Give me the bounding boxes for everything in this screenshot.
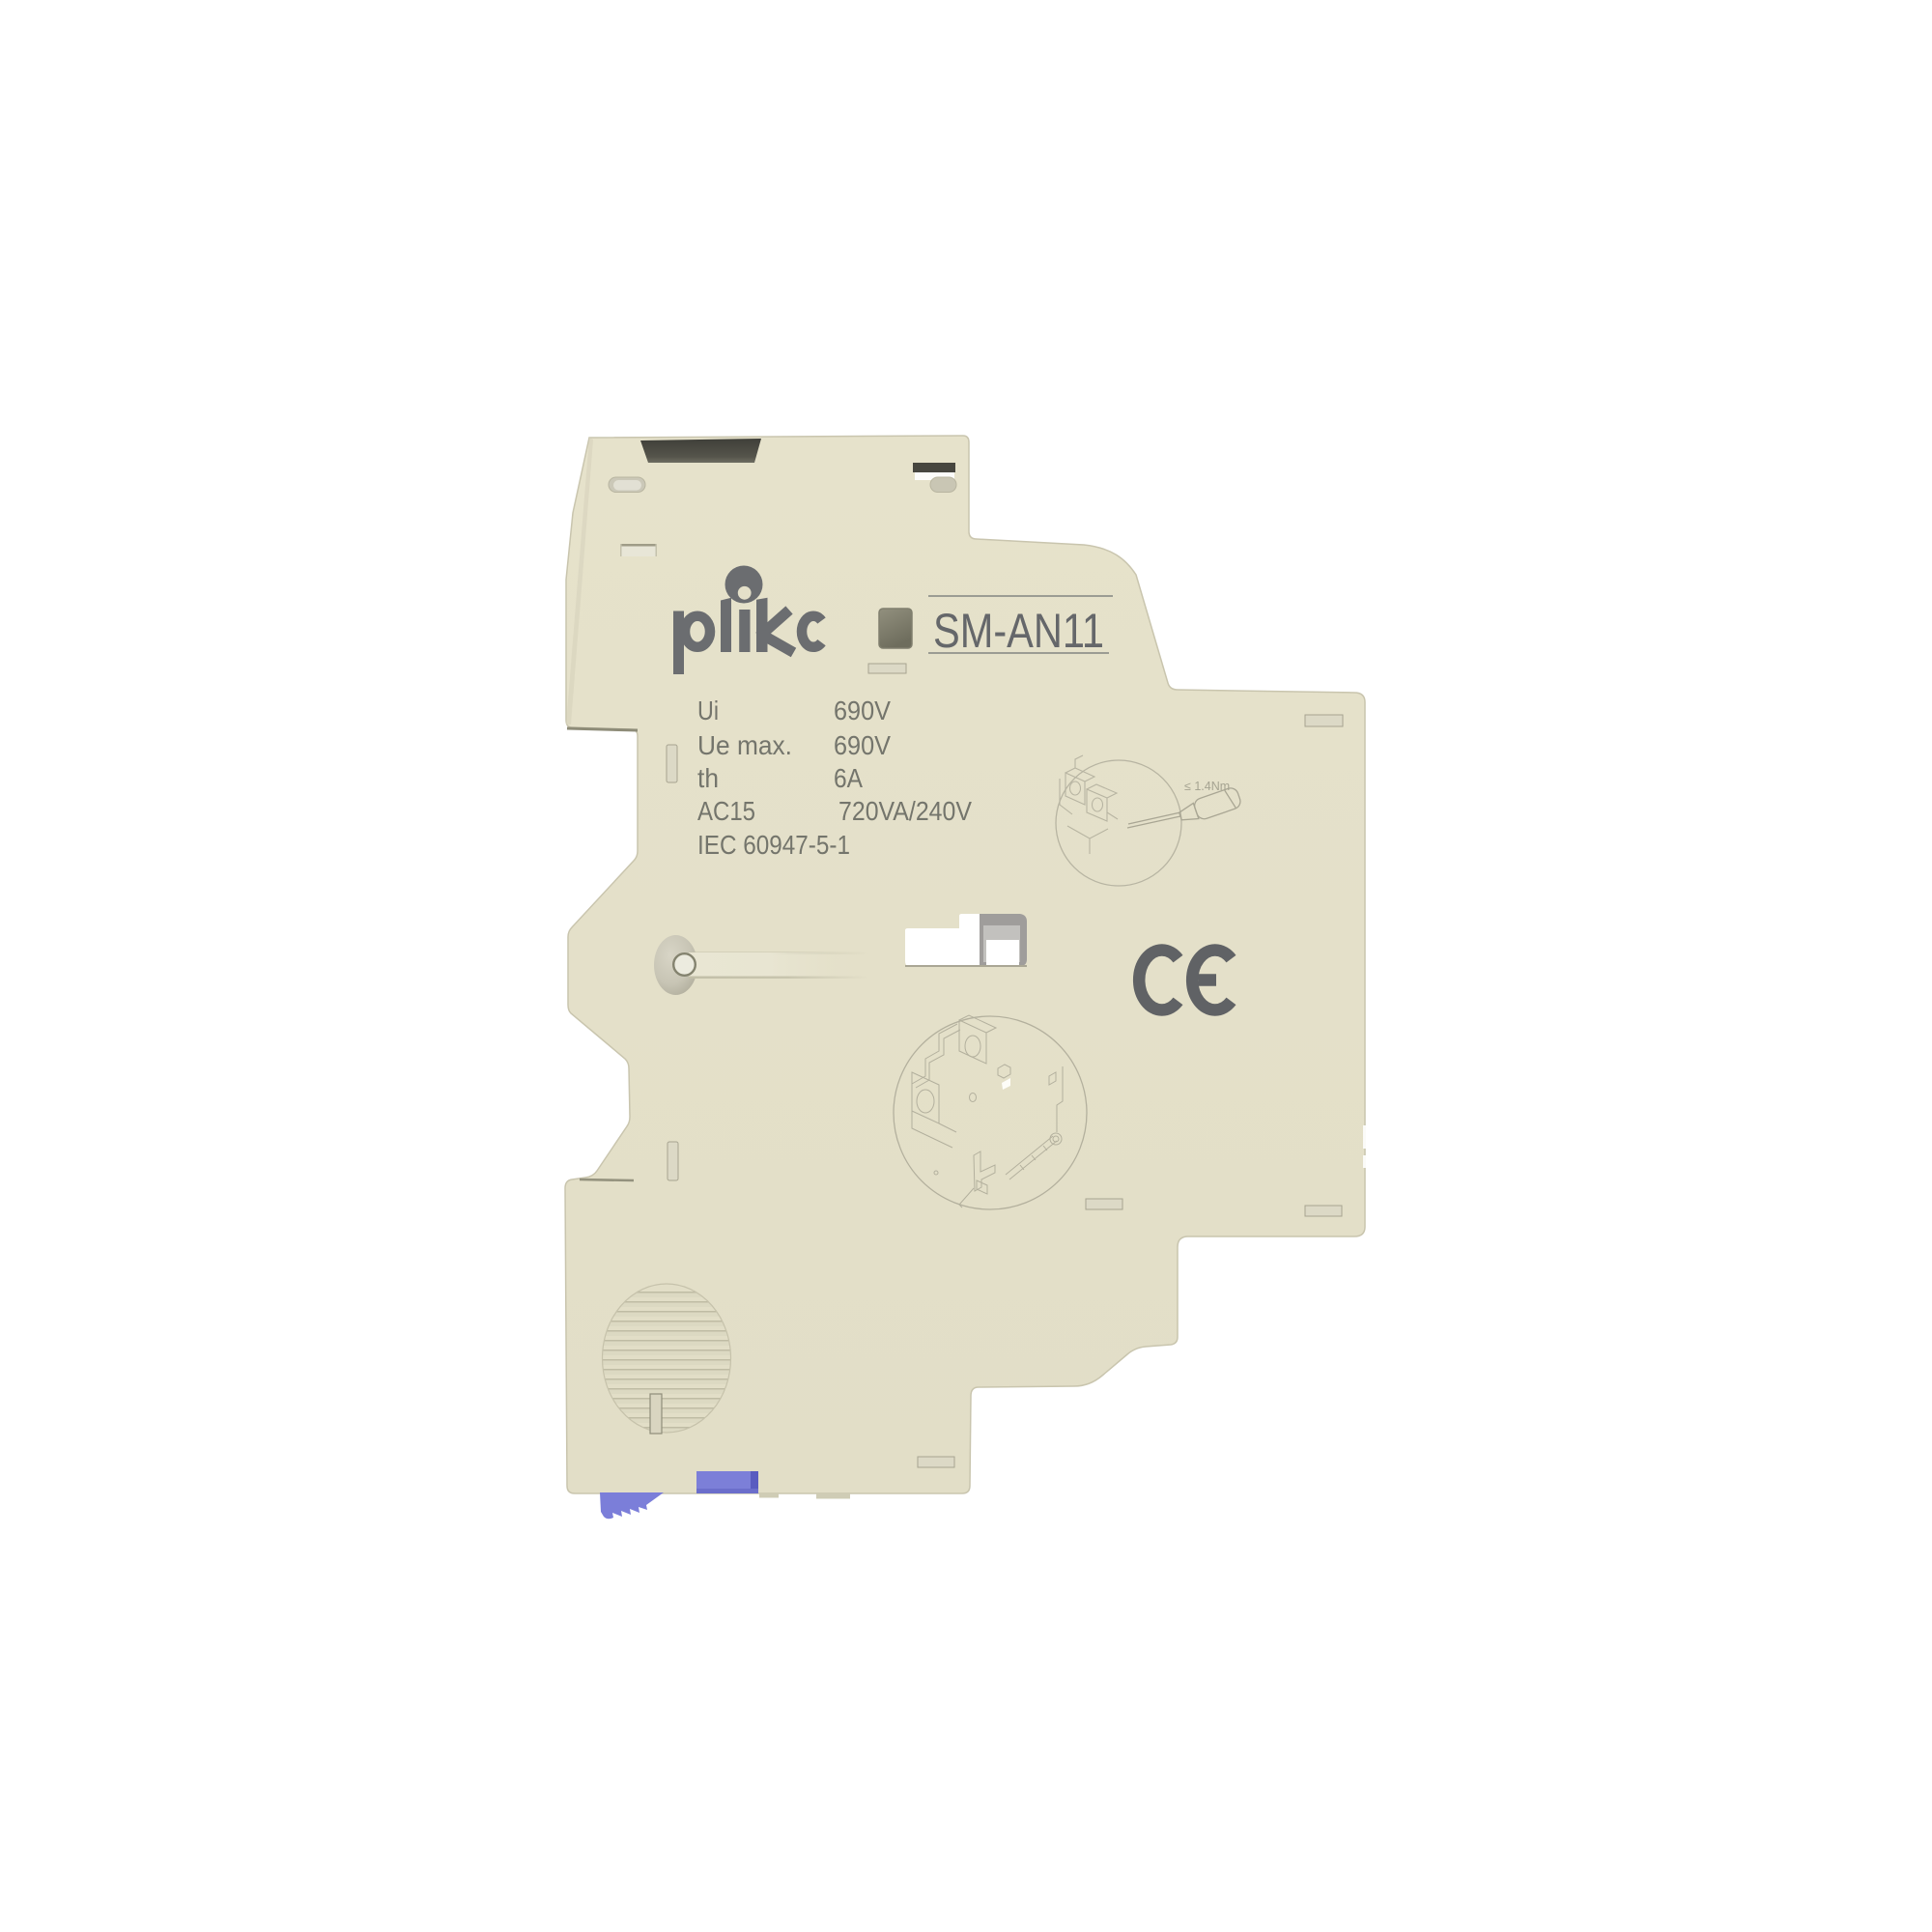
svg-text:AC15: AC15 — [697, 796, 755, 826]
svg-text:690V: 690V — [834, 696, 891, 725]
svg-text:690V: 690V — [834, 730, 891, 760]
svg-text:≤ 1.4Nm: ≤ 1.4Nm — [1184, 780, 1230, 793]
svg-text:Ue max.: Ue max. — [697, 730, 792, 760]
svg-text:Ui: Ui — [697, 696, 719, 725]
svg-text:SM-AN11: SM-AN11 — [933, 604, 1104, 658]
svg-text:th: th — [697, 763, 719, 793]
svg-text:6A: 6A — [834, 763, 863, 793]
svg-text:IEC 60947-5-1: IEC 60947-5-1 — [697, 830, 850, 860]
svg-text:720VA/240V: 720VA/240V — [838, 796, 972, 826]
